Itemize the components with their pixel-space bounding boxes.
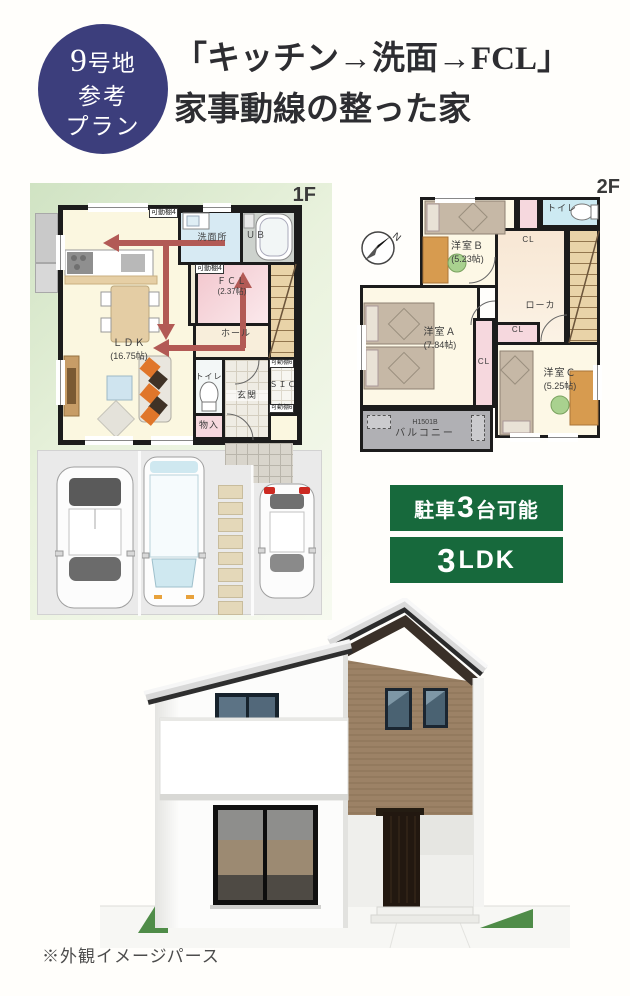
label-shelf-top: 可動棚4	[149, 208, 178, 218]
label-balcony: H1501B バルコニー	[385, 419, 465, 440]
label-roka: ローカ	[513, 300, 568, 311]
label-ub: ＵＢ	[241, 230, 271, 241]
label-cl-c: CL	[497, 325, 539, 335]
floor-plan-1f: 1F	[30, 183, 332, 620]
label-fcl: ＦＣＬ (2.37帖)	[195, 276, 269, 297]
lot-suffix: 号地	[88, 51, 136, 76]
page-title: 「キッチン→洗面→FCL」 家事動線の整った家	[174, 34, 570, 137]
badge-line-1: 9号地	[38, 40, 168, 82]
window	[510, 433, 540, 442]
label-ldk: ＬＤＫ (16.75帖)	[89, 338, 169, 362]
badge-floor-plan-type: 3LDK	[390, 537, 563, 583]
exterior-utility-box	[35, 213, 58, 263]
label-cl-b: CL	[517, 235, 540, 245]
label-sic-shelf-top: 可動棚6	[269, 359, 294, 368]
car-minivan-topview	[142, 455, 206, 609]
label-sic: ＳＩＣ	[268, 380, 298, 390]
window	[85, 436, 133, 445]
stepping-stones	[218, 485, 243, 615]
window	[435, 194, 475, 203]
title-line-2: 家事動線の整った家	[174, 85, 570, 136]
window-1f	[210, 805, 321, 909]
label-room-b: 洋室Ｂ (5.23帖)	[425, 241, 510, 265]
plan-count: 3	[437, 544, 457, 577]
furniture-and-arrows-1f	[63, 210, 297, 440]
label-sic-shelf-btm: 可動棚6	[269, 404, 294, 413]
house-exterior-render	[100, 598, 570, 948]
label-room-c: 洋室Ｃ (5.25帖)	[520, 368, 600, 392]
badge-line-3: プラン	[38, 112, 168, 141]
window	[357, 325, 366, 370]
car-sedan-topview	[55, 465, 135, 610]
label-toilet-1f: トイレ	[189, 372, 229, 382]
label-monoire: 物入	[193, 420, 225, 431]
label-shelf-mid: 可動棚4	[195, 264, 224, 274]
entrance-door	[383, 812, 420, 907]
label-cl-mid: CL	[473, 357, 495, 367]
badge-parking: 駐車3台可能	[390, 485, 563, 531]
house-1f: ＬＤＫ (16.75帖) 洗面所 ＵＢ ＦＣＬ (2.37帖) ホール トイレ …	[58, 205, 302, 445]
badge-line-2: 参考	[38, 82, 168, 111]
window	[203, 203, 231, 212]
window	[548, 433, 578, 442]
flyer-page: 9号地 参考 プラン 「キッチン→洗面→FCL」 家事動線の整った家 1F	[0, 0, 630, 996]
window	[151, 436, 193, 445]
floor-label-1f: 1F	[293, 184, 316, 207]
parking-suffix: 台可能	[476, 494, 539, 523]
window	[56, 235, 65, 270]
parking-prefix: 駐車	[414, 494, 456, 523]
window	[88, 203, 148, 212]
label-room-a: 洋室Ａ (7.84帖)	[400, 327, 480, 351]
title-line-1: 「キッチン→洗面→FCL」	[174, 34, 570, 85]
floor-plan-2f: 2F N	[345, 175, 630, 467]
lot-number: 9	[70, 43, 88, 79]
label-senmenjo: 洗面所	[185, 232, 240, 243]
compass-icon: N	[362, 231, 403, 264]
render-caption: ※外観イメージパース	[42, 942, 220, 967]
lot-number-badge: 9号地 参考 プラン	[38, 24, 168, 154]
plan-type: LDK	[458, 546, 515, 575]
parking-count: 3	[457, 493, 475, 523]
label-genkan: 玄関	[226, 390, 268, 401]
window	[56, 360, 65, 405]
label-toilet-2f: トイレ	[542, 203, 582, 214]
label-hall: ホール	[211, 328, 261, 339]
exterior-utility-box-2	[35, 263, 58, 293]
car-compact-topview	[258, 482, 316, 600]
